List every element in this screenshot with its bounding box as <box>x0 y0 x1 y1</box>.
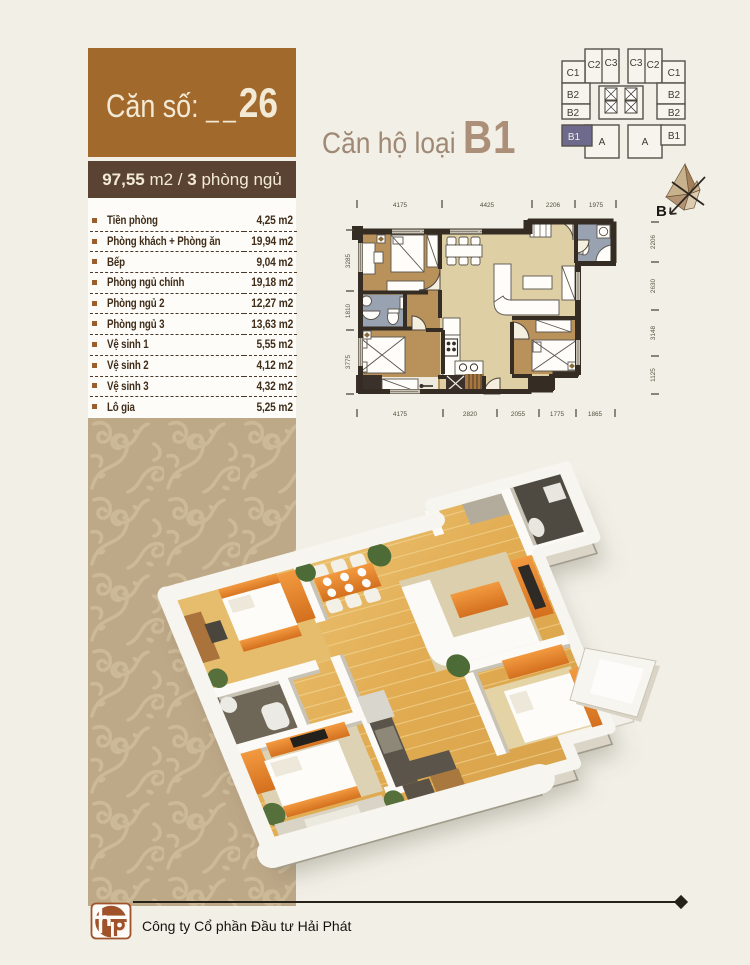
svg-text:2820: 2820 <box>463 411 478 418</box>
svg-text:A: A <box>599 137 606 148</box>
svg-text:C2: C2 <box>647 60 660 71</box>
svg-text:3148: 3148 <box>650 325 657 340</box>
svg-text:1865: 1865 <box>588 411 603 418</box>
svg-text:C1: C1 <box>668 68 681 79</box>
svg-text:C3: C3 <box>630 58 643 69</box>
svg-text:4175: 4175 <box>393 202 408 209</box>
svg-text:1810: 1810 <box>345 303 352 318</box>
svg-text:4175: 4175 <box>393 411 408 418</box>
svg-text:1125: 1125 <box>650 368 657 382</box>
svg-text:B1: B1 <box>568 132 581 143</box>
svg-text:C1: C1 <box>567 68 580 79</box>
svg-text:B2: B2 <box>567 108 580 119</box>
svg-text:B2: B2 <box>668 108 681 119</box>
svg-text:B2: B2 <box>567 90 580 101</box>
svg-text:2206: 2206 <box>546 202 561 209</box>
svg-text:4425: 4425 <box>480 202 495 209</box>
svg-text:1975: 1975 <box>589 202 604 209</box>
svg-text:B2: B2 <box>668 90 681 101</box>
svg-text:C2: C2 <box>588 60 601 71</box>
svg-text:3775: 3775 <box>345 354 352 369</box>
svg-text:2630: 2630 <box>650 278 657 293</box>
svg-text:1775: 1775 <box>550 411 565 418</box>
svg-text:2055: 2055 <box>511 411 526 418</box>
svg-text:3285: 3285 <box>345 253 352 268</box>
svg-text:2206: 2206 <box>650 234 657 249</box>
svg-text:C3: C3 <box>605 58 618 69</box>
